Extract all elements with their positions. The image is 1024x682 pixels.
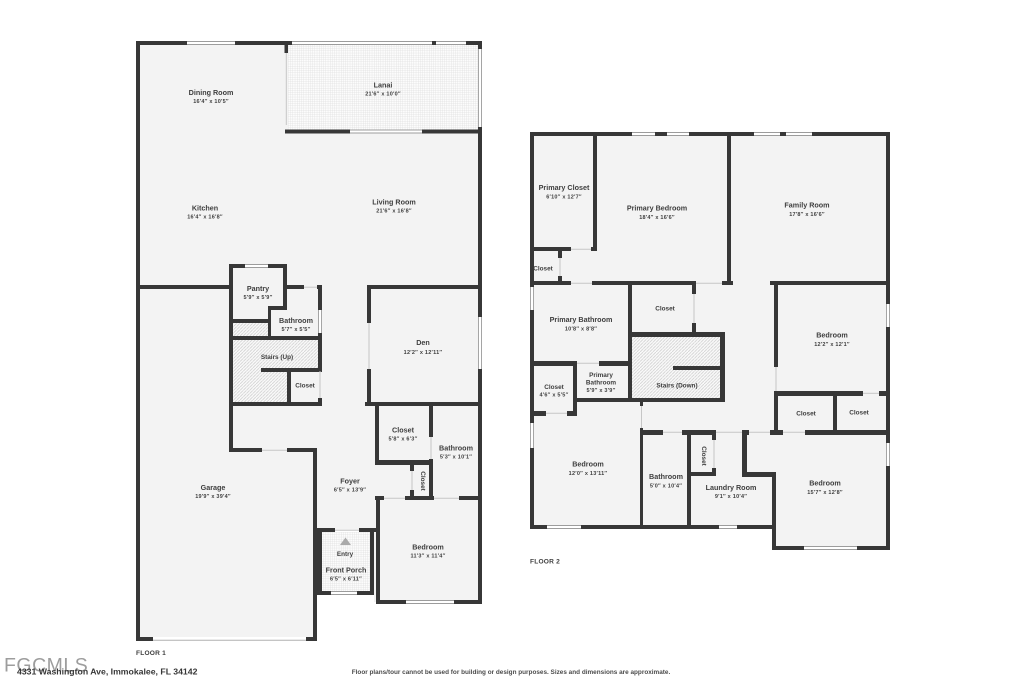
svg-text:Bathroom: Bathroom [649,472,683,481]
svg-text:10′8″ x 8′8″: 10′8″ x 8′8″ [565,327,597,333]
svg-text:4′6″ x 5′5″: 4′6″ x 5′5″ [539,393,568,399]
svg-text:Bathroom: Bathroom [586,380,616,387]
svg-text:11′3″ x 11′4″: 11′3″ x 11′4″ [410,554,445,560]
svg-text:Bathroom: Bathroom [279,316,313,325]
svg-text:Floor plans/tour cannot be use: Floor plans/tour cannot be used for buil… [352,669,671,676]
svg-text:5′0″ x 10′4″: 5′0″ x 10′4″ [650,484,682,490]
svg-text:Kitchen: Kitchen [192,204,218,213]
svg-text:Stairs (Up): Stairs (Up) [261,354,293,361]
svg-text:Bedroom: Bedroom [809,479,841,488]
svg-text:Family Room: Family Room [784,201,829,210]
svg-text:Closet: Closet [295,383,315,390]
svg-text:Lanai: Lanai [374,81,393,90]
svg-text:17′8″ x 16′6″: 17′8″ x 16′6″ [789,212,825,218]
svg-text:Front Porch: Front Porch [326,566,367,575]
svg-text:18′4″ x 16′6″: 18′4″ x 16′6″ [639,215,675,221]
svg-text:Laundry Room: Laundry Room [706,483,757,492]
svg-text:15′7″ x 12′8″: 15′7″ x 12′8″ [807,490,843,496]
svg-text:Closet: Closet [419,471,426,491]
svg-text:Closet: Closet [533,266,553,273]
svg-text:Closet: Closet [796,411,816,418]
svg-text:Bathroom: Bathroom [439,444,473,453]
svg-text:Pantry: Pantry [247,284,269,293]
svg-text:FLOOR 2: FLOOR 2 [530,559,560,566]
svg-text:Closet: Closet [655,306,675,313]
svg-text:6′10″ x 12′7″: 6′10″ x 12′7″ [546,195,582,201]
svg-text:Foyer: Foyer [340,477,360,486]
svg-text:Bedroom: Bedroom [572,460,604,469]
svg-text:5′9″ x 5′9″: 5′9″ x 5′9″ [243,295,272,301]
svg-text:Closet: Closet [544,384,564,391]
svg-text:FLOOR 1: FLOOR 1 [136,650,166,657]
svg-text:Garage: Garage [201,483,226,492]
svg-text:5′9″ x 3′9″: 5′9″ x 3′9″ [586,388,615,394]
svg-text:5′8″ x 6′3″: 5′8″ x 6′3″ [388,437,417,443]
svg-text:Closet: Closet [849,410,869,417]
svg-text:Living Room: Living Room [372,198,416,207]
svg-text:5′7″ x 5′5″: 5′7″ x 5′5″ [281,327,310,333]
svg-text:Primary: Primary [589,372,613,379]
svg-text:16′4″ x 10′5″: 16′4″ x 10′5″ [193,99,229,105]
svg-text:16′4″ x 16′8″: 16′4″ x 16′8″ [187,215,223,221]
svg-text:Dining Room: Dining Room [189,88,234,97]
svg-text:Den: Den [416,338,430,347]
svg-text:5′3″ x 10′1″: 5′3″ x 10′1″ [440,455,472,461]
svg-text:Stairs (Down): Stairs (Down) [656,383,697,390]
svg-text:Primary Bathroom: Primary Bathroom [550,315,613,324]
svg-text:21′6″ x 10′0″: 21′6″ x 10′0″ [365,92,401,98]
svg-text:21′6″ x 16′8″: 21′6″ x 16′8″ [376,209,412,215]
svg-text:6′5″ x 6′11″: 6′5″ x 6′11″ [330,577,362,583]
svg-text:4331 Washington Ave, Immokalee: 4331 Washington Ave, Immokalee, FL 34142 [17,667,198,677]
svg-text:Primary Closet: Primary Closet [539,183,590,192]
svg-text:Closet: Closet [700,446,707,466]
svg-text:6′5″ x 13′9″: 6′5″ x 13′9″ [334,488,366,494]
svg-text:12′2″ x 12′1″: 12′2″ x 12′1″ [814,342,850,348]
svg-text:Primary Bedroom: Primary Bedroom [627,204,687,213]
svg-text:12′2″ x 12′11″: 12′2″ x 12′11″ [404,350,443,356]
svg-text:Bedroom: Bedroom [412,543,444,552]
svg-text:19′9″ x 39′4″: 19′9″ x 39′4″ [195,494,231,500]
svg-text:9′1″ x 10′4″: 9′1″ x 10′4″ [715,494,747,500]
svg-text:Bedroom: Bedroom [816,331,848,340]
svg-text:Entry: Entry [337,551,354,558]
svg-text:Closet: Closet [392,426,415,435]
svg-text:12′0″ x 13′11″: 12′0″ x 13′11″ [569,471,608,477]
